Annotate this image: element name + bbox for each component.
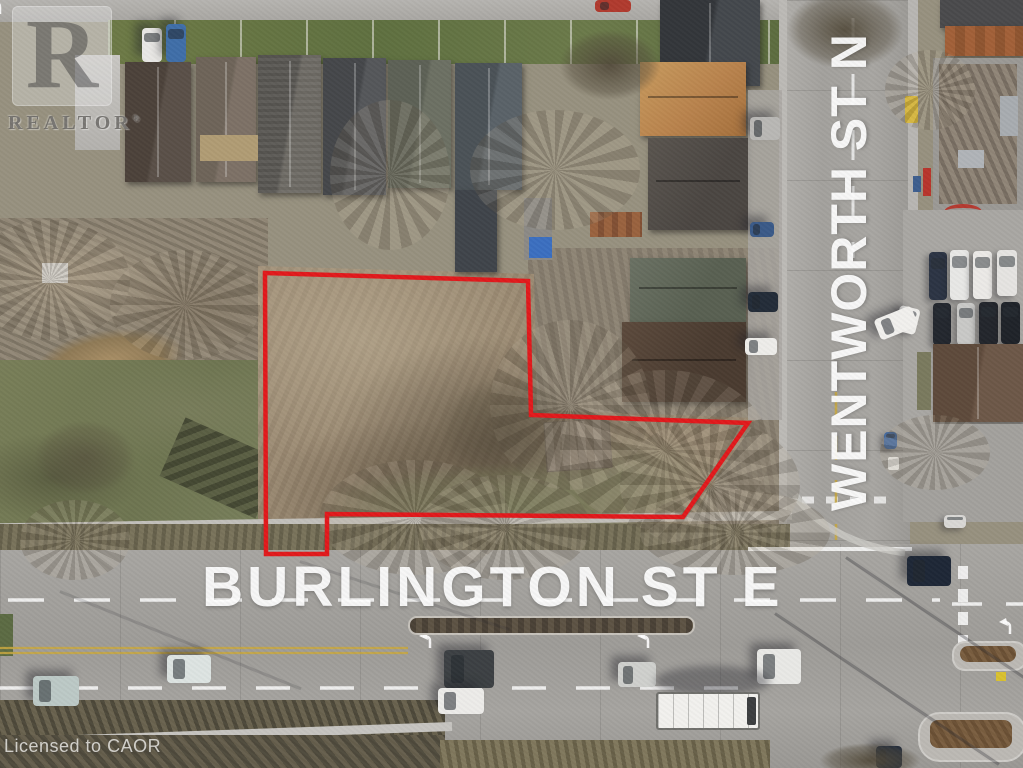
tree — [330, 100, 450, 250]
parked-car — [979, 302, 998, 345]
street-label-burlington: BURLINGTON ST E — [202, 554, 783, 620]
tree-shadow — [420, 360, 600, 500]
car — [142, 28, 162, 62]
backyard-deck — [200, 135, 258, 161]
red-pickup — [595, 0, 631, 12]
parked-car — [944, 515, 966, 528]
aerial-photo: BURLINGTON ST E WENTWORTH ST N R REALTOR… — [0, 0, 1023, 768]
house-roof — [196, 57, 256, 182]
registered-mark: ® — [133, 113, 140, 123]
parked-suv — [750, 117, 780, 140]
parked-car — [973, 251, 992, 299]
car-navy — [907, 556, 951, 586]
car-white — [438, 688, 484, 714]
license-text: Licensed to CAOR — [4, 736, 161, 757]
parked-car — [933, 303, 951, 345]
parked-car — [1001, 302, 1020, 344]
parked-car — [748, 292, 778, 312]
car-silver — [618, 662, 656, 687]
red-container — [923, 168, 931, 196]
parked-car — [750, 222, 774, 237]
hvac-unit — [958, 150, 984, 168]
car — [166, 24, 186, 62]
house-roof — [648, 138, 748, 230]
realtor-logo-block: R — [12, 6, 112, 106]
transit-bus — [656, 692, 760, 730]
realtor-watermark: R REALTOR® — [8, 6, 124, 135]
parked-car — [929, 252, 947, 300]
parked-car — [950, 250, 969, 300]
rooftop — [940, 0, 1023, 28]
tree — [880, 415, 990, 490]
garden-shed — [917, 352, 931, 410]
house-roof — [933, 344, 1023, 422]
blue-container — [913, 176, 921, 192]
signal-box — [996, 672, 1006, 681]
rust-roof — [945, 26, 1023, 56]
grass-verge — [440, 740, 770, 768]
realtor-logo-letter: R — [12, 0, 112, 100]
tree-shadow — [20, 410, 150, 505]
truck-white — [167, 655, 211, 683]
parked-car — [745, 338, 777, 355]
hvac-unit — [1000, 96, 1018, 136]
street-label-wentworth: WENTWORTH ST N — [820, 89, 872, 511]
house-roof — [258, 55, 321, 193]
pickup-teal — [33, 676, 79, 706]
blue-tarp — [529, 237, 552, 258]
tree — [110, 250, 260, 360]
tree — [20, 500, 130, 580]
realtor-logo-text: REALTOR® — [8, 112, 124, 135]
house-roof — [630, 258, 746, 322]
parked-car — [997, 250, 1017, 296]
tree — [885, 50, 975, 130]
suv-dark — [444, 650, 494, 688]
tree — [470, 110, 640, 230]
parked-car — [957, 303, 975, 345]
grass-verge — [0, 614, 13, 656]
tree — [545, 20, 675, 110]
